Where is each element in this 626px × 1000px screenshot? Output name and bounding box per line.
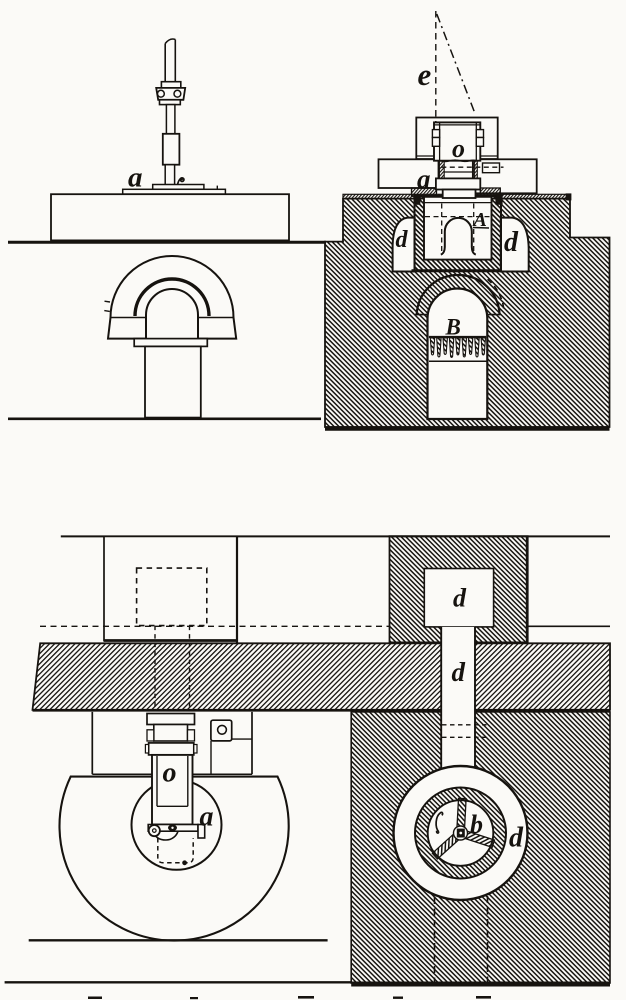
svg-text:a: a bbox=[200, 802, 214, 833]
svg-text:B: B bbox=[445, 315, 461, 340]
svg-text:b: b bbox=[470, 810, 483, 839]
svg-text:d: d bbox=[453, 584, 467, 613]
svg-text:o: o bbox=[163, 758, 177, 789]
svg-text:a: a bbox=[417, 164, 431, 194]
svg-text:d: d bbox=[452, 657, 466, 687]
svg-text:d: d bbox=[509, 823, 524, 854]
svg-text:e: e bbox=[418, 57, 432, 92]
svg-text:d: d bbox=[504, 227, 519, 258]
svg-text:d: d bbox=[396, 227, 409, 253]
svg-text:o: o bbox=[452, 134, 465, 163]
